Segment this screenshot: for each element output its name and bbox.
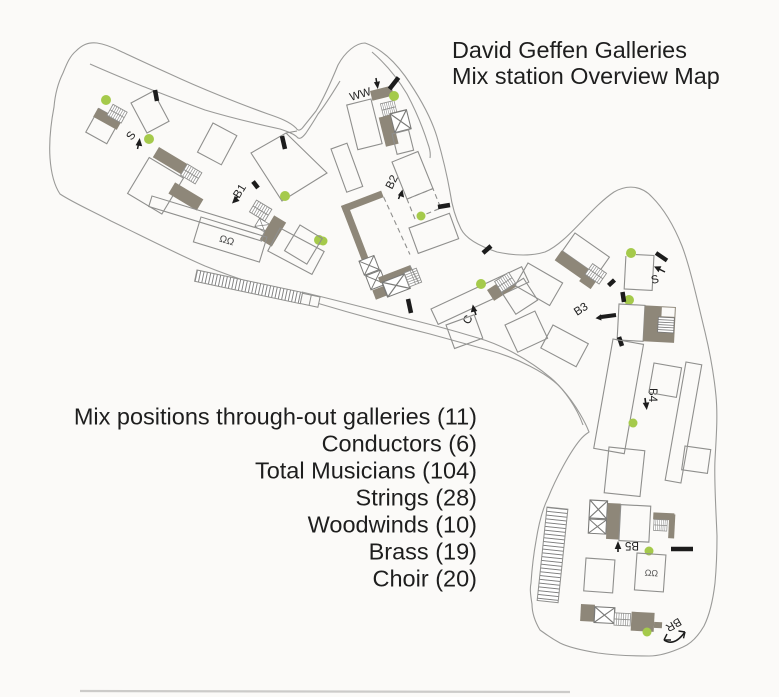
svg-text:Total Musicians (104): Total Musicians (104) bbox=[255, 458, 477, 484]
svg-text:Brass (19): Brass (19) bbox=[369, 539, 477, 565]
svg-text:ΩΩ: ΩΩ bbox=[644, 568, 658, 579]
svg-text:Strings (28): Strings (28) bbox=[356, 485, 477, 511]
svg-text:B4: B4 bbox=[646, 388, 658, 403]
svg-text:B5: B5 bbox=[625, 539, 639, 551]
svg-text:Mix station Overview Map: Mix station Overview Map bbox=[452, 63, 720, 89]
svg-text:Mix positions through-out gall: Mix positions through-out galleries (11) bbox=[74, 404, 477, 430]
svg-text:Conductors (6): Conductors (6) bbox=[322, 431, 477, 457]
svg-text:Woodwinds (10): Woodwinds (10) bbox=[308, 512, 477, 538]
svg-text:Choir (20): Choir (20) bbox=[373, 566, 477, 592]
svg-text:David Geffen Galleries: David Geffen Galleries bbox=[452, 37, 687, 63]
